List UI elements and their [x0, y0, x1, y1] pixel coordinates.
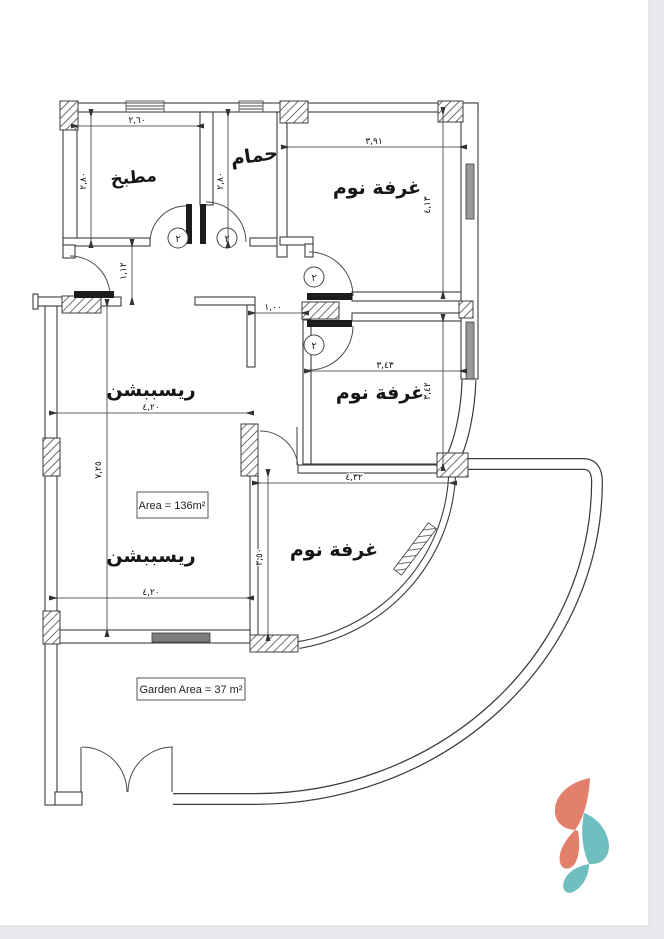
- bedroom3-door-arc: [260, 431, 298, 469]
- area-note: Area = 136m²: [137, 492, 208, 518]
- entry-door-leaf: [74, 291, 114, 298]
- window-bathroom: [239, 101, 263, 112]
- logo-teal-upper-leaf: [582, 813, 609, 864]
- bedroom2-north-wall: [352, 313, 461, 321]
- dim-bedroom1-height: ٤,١٣: [423, 196, 433, 214]
- bathroom-door-leaf: [200, 204, 206, 244]
- svg-text:٢: ٢: [311, 341, 316, 352]
- bedroom1-door-leaf: [307, 293, 352, 300]
- brand-logo: [555, 778, 609, 893]
- garden-gate-leaf-right: [128, 747, 173, 792]
- door-tags: ٢ ٢ ٢ ٢: [168, 228, 324, 355]
- dim-bedroom3-height: ٣,٥٠: [255, 548, 265, 565]
- bedroom1-south-wall: [352, 292, 461, 301]
- bedroom1-door-jamb: [305, 244, 313, 257]
- window-reception: [152, 633, 210, 642]
- dim-bathroom-height: ٢,٨٠: [216, 172, 226, 189]
- floorplan-page: ٢ ٢ ٢ ٢ ٢,٦٠ ٢,٨٠ ٢,٨٠: [0, 0, 664, 939]
- kitchen-bath-divider: [200, 112, 213, 205]
- door-tag: ٢: [304, 335, 324, 355]
- column-right-mid: [459, 301, 473, 318]
- dim-bedroom2-height: ٣,٤٢: [423, 382, 433, 400]
- bedroom3-north-wall: [298, 465, 437, 473]
- door-tag: ٢: [304, 267, 324, 287]
- door-tag: ٢: [217, 228, 237, 248]
- room-label-kitchen: مطبخ: [110, 166, 158, 190]
- dim-reception-height: ٧,٢٥: [94, 461, 104, 479]
- dim-kitchen-width: ٢,٦٠: [128, 116, 145, 126]
- column-reception-east: [241, 424, 258, 476]
- bedroom2-door-leaf: [307, 320, 352, 327]
- dim-bedroom1-width: ٣,٩١: [365, 137, 382, 147]
- reception-north-wall: [195, 297, 255, 305]
- column-top-middle: [280, 101, 308, 123]
- bathroom-bottom-wall: [250, 238, 280, 246]
- room-label-bedroom1: غرفة نوم: [333, 177, 421, 199]
- kitchen-left-wall: [63, 112, 77, 245]
- column-left-mid: [43, 438, 60, 476]
- reception-south-wall: [45, 630, 250, 643]
- entry-wall-cap: [33, 294, 38, 309]
- exterior-walls: [45, 103, 478, 805]
- logo-coral-lower-leaf: [560, 830, 580, 869]
- room-label-bedroom2: غرفة نوم: [336, 382, 424, 404]
- kitchen-bottom-wall: [63, 238, 150, 246]
- wall-top: [63, 103, 478, 112]
- svg-text:٢: ٢: [311, 273, 316, 284]
- column-curve-west: [250, 635, 298, 652]
- svg-text:٢: ٢: [175, 234, 180, 245]
- window-bedroom1: [466, 164, 474, 219]
- area-label: Area = 136m²: [139, 500, 206, 512]
- room-label-reception-upper: ريسببشن: [106, 379, 195, 401]
- room-label-bathroom: حمام: [229, 142, 279, 170]
- dim-kitchen-height: ٢,٨٠: [79, 172, 89, 189]
- column-top-left: [60, 101, 78, 130]
- entry-door-arc: [70, 256, 110, 296]
- window-bedroom2: [466, 322, 474, 379]
- bedroom3-curved-wall: [299, 477, 452, 645]
- svg-text:٢: ٢: [224, 234, 229, 245]
- dim-bedroom3-width: ٤,٣٢: [345, 473, 363, 483]
- column-top-right: [438, 101, 463, 122]
- door-tag: ٢: [168, 228, 188, 248]
- doors: [70, 202, 353, 792]
- wall-bottom-left: [55, 792, 82, 805]
- wall-left: [45, 306, 57, 805]
- dim-entry-recess: ١,١٢: [119, 262, 129, 280]
- column-entry: [62, 296, 101, 313]
- column-curve-east: [437, 453, 468, 477]
- room-label-reception-lower: ريسببشن: [106, 545, 195, 567]
- page-edge-bottom: [0, 926, 664, 939]
- floorplan-drawing: ٢ ٢ ٢ ٢ ٢,٦٠ ٢,٨٠ ٢,٨٠: [0, 0, 664, 939]
- garden-area-label: Garden Area = 37 m²: [139, 684, 242, 696]
- dim-hall-opening: ١,٠٠: [264, 303, 281, 313]
- page-edge-right: [649, 0, 664, 939]
- garden-area-note: Garden Area = 37 m²: [137, 678, 245, 700]
- dim-reception-width-lower: ٤,٢٠: [142, 588, 159, 598]
- column-hall: [302, 302, 339, 319]
- column-left-lower: [43, 611, 60, 644]
- reception-east-wall-upper: [247, 305, 255, 367]
- bath-bedroom1-divider: [277, 112, 287, 257]
- window-kitchen: [126, 101, 164, 112]
- room-label-bedroom3: غرفة نوم: [290, 539, 378, 561]
- garden-gate-leaf-left: [82, 747, 127, 792]
- dim-bedroom2-width: ٣,٤٣: [376, 361, 394, 371]
- dim-reception-width: ٤,٢٠: [142, 403, 159, 413]
